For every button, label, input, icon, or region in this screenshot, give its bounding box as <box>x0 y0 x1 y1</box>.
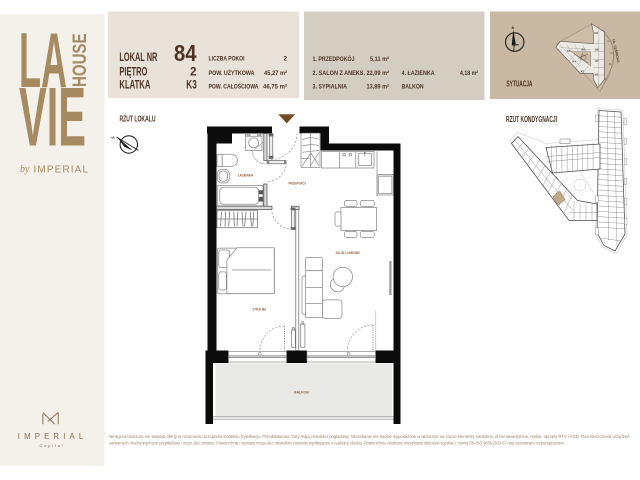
svg-text:K6: K6 <box>582 48 586 52</box>
svg-text:3. SYPIALNIA: 3. SYPIALNIA <box>313 84 348 91</box>
svg-text:84: 84 <box>174 40 197 66</box>
svg-text:by: by <box>20 164 30 175</box>
svg-text:BALKON: BALKON <box>294 389 309 394</box>
svg-text:sanitarnych i kuchennych jest: sanitarnych i kuchennych jest przykładow… <box>109 441 565 446</box>
svg-text:K2: K2 <box>581 69 585 73</box>
svg-text:SYPIALNIA: SYPIALNIA <box>253 308 267 312</box>
svg-text:K8: K8 <box>595 31 599 35</box>
svg-text:POW. UŻYTKOWA: POW. UŻYTKOWA <box>209 69 255 77</box>
svg-text:4. ŁAZIENKA: 4. ŁAZIENKA <box>402 70 435 77</box>
svg-text:2: 2 <box>283 55 287 62</box>
svg-text:LOKAL NR: LOKAL NR <box>119 51 157 64</box>
svg-text:SYTUACJA: SYTUACJA <box>506 80 532 89</box>
svg-text:PIĘTRO: PIĘTRO <box>119 65 147 78</box>
svg-text:K1: K1 <box>595 73 599 77</box>
svg-text:IMPERIAL: IMPERIAL <box>34 165 89 176</box>
svg-text:13,89 m²: 13,89 m² <box>367 84 390 91</box>
svg-text:1. PRZEDPOKÓJ: 1. PRZEDPOKÓJ <box>313 54 355 63</box>
svg-text:K3: K3 <box>186 79 197 92</box>
svg-text:KLATKA: KLATKA <box>119 79 150 92</box>
svg-text:SALON Z ANEKSEM: SALON Z ANEKSEM <box>336 251 360 255</box>
svg-text:RZUT LOKALU: RZUT LOKALU <box>120 114 156 123</box>
svg-text:K6: K6 <box>595 48 599 52</box>
svg-text:K7: K7 <box>595 59 599 63</box>
svg-text:K4: K4 <box>573 60 577 64</box>
svg-text:N: N <box>110 135 115 141</box>
svg-text:VIE: VIE <box>19 70 86 164</box>
svg-text:Niniejsza broszura nie stanowi: Niniejsza broszura nie stanowi oferty w … <box>109 434 630 439</box>
svg-text:ŁAZIENKA: ŁAZIENKA <box>238 174 254 178</box>
svg-text:2: 2 <box>190 65 196 78</box>
svg-text:45,27 m²: 45,27 m² <box>264 70 288 77</box>
svg-text:22,09 m²: 22,09 m² <box>367 70 390 77</box>
svg-text:RZUT KONDYGNACJI: RZUT KONDYGNACJI <box>506 115 557 124</box>
svg-text:PRZEDPOKÓJ: PRZEDPOKÓJ <box>288 181 306 186</box>
svg-text:4,18 m²: 4,18 m² <box>460 70 479 77</box>
svg-text:LICZBA POKOI: LICZBA POKOI <box>209 55 245 62</box>
svg-text:46,75 m²: 46,75 m² <box>263 84 288 91</box>
svg-text:BALKON: BALKON <box>402 84 424 91</box>
svg-text:2. SALON Z ANEKS.: 2. SALON Z ANEKS. <box>313 70 366 77</box>
svg-text:K5: K5 <box>567 49 571 53</box>
svg-text:5,11 m²: 5,11 m² <box>370 56 390 63</box>
svg-text:POW. CAŁOŚCIOWA: POW. CAŁOŚCIOWA <box>209 82 259 91</box>
